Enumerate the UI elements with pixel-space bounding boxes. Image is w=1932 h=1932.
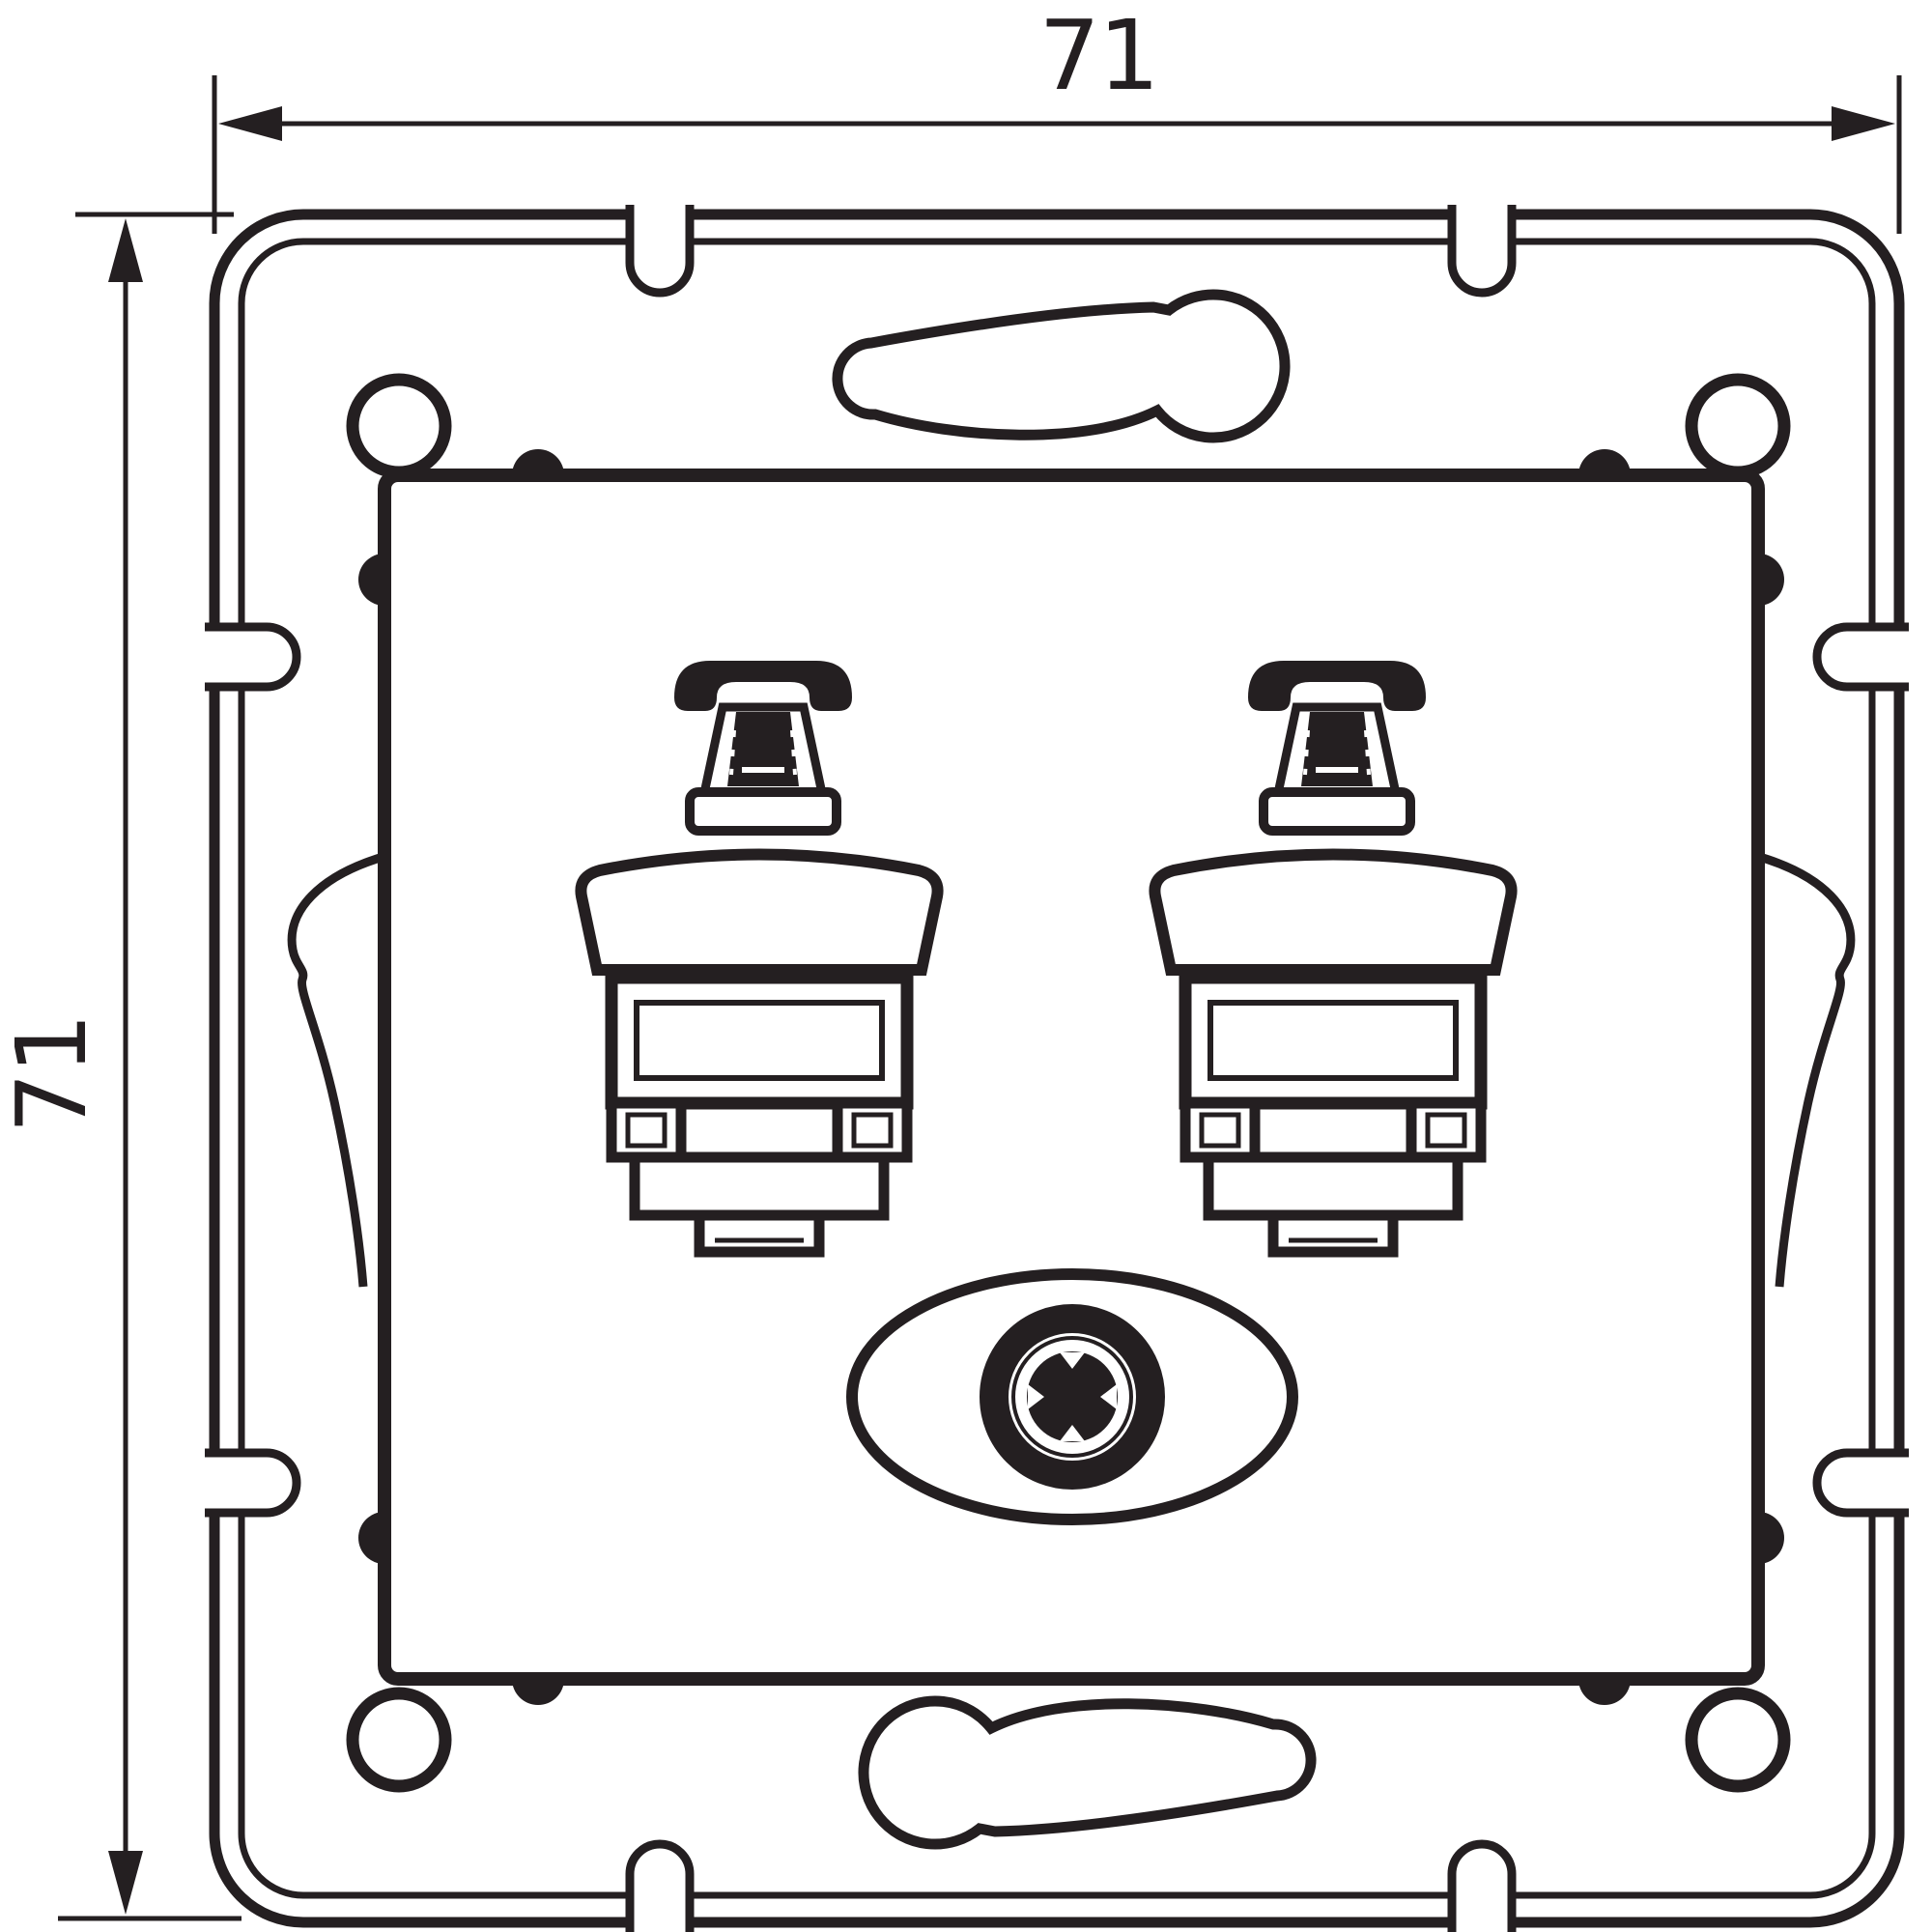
rj-jack-right	[1154, 855, 1511, 1253]
width-dimension: 71	[214, 0, 1899, 234]
corner-hole-bottom-left	[353, 1693, 445, 1786]
width-dimension-label: 71	[1038, 0, 1157, 112]
corner-hole-bottom-right	[1691, 1693, 1784, 1786]
notch-top-right-icon	[1452, 205, 1512, 293]
height-dimension-label: 71	[0, 1014, 108, 1133]
notch-bottom-left-icon	[630, 1844, 690, 1932]
height-dimension: 71	[0, 214, 241, 1918]
corner-hole-top-left	[353, 380, 445, 472]
technical-drawing-page: 71 71	[0, 0, 1932, 1932]
arrowhead-left-icon	[218, 106, 282, 141]
notch-right-upper-icon	[1817, 627, 1909, 687]
notch-bottom-right-icon	[1452, 1844, 1512, 1932]
dimension-drawing-canvas: 71 71	[0, 0, 1932, 1932]
arrowhead-up-icon	[108, 218, 143, 282]
notch-right-lower-icon	[1817, 1453, 1909, 1513]
notch-left-upper-icon	[205, 627, 297, 687]
corner-hole-top-right	[1691, 380, 1784, 472]
rj-jack-left	[581, 855, 937, 1253]
notch-top-left-icon	[630, 205, 690, 293]
arrowhead-right-icon	[1832, 106, 1895, 141]
screw-recess	[852, 1274, 1293, 1520]
notch-left-lower-icon	[205, 1453, 297, 1513]
arrowhead-down-icon	[108, 1851, 143, 1915]
